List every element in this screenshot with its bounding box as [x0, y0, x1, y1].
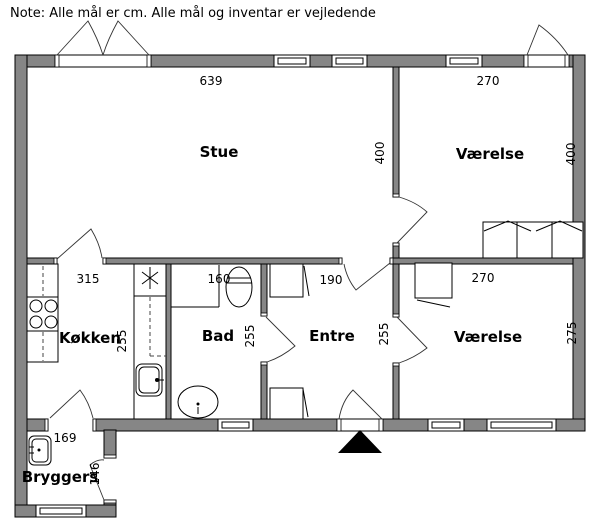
kitchen-sink-icon	[136, 364, 164, 396]
wardrobe-icon	[270, 264, 303, 297]
door-swing-icon	[57, 229, 102, 259]
dim-bad-width: 160	[208, 272, 231, 286]
dim-koekken-depth: 255	[115, 330, 129, 353]
dim-bryggers-width: 169	[54, 431, 77, 445]
room-label-vaerelse-bottom: Værelse	[454, 328, 522, 346]
wardrobe-icon	[415, 263, 452, 298]
door-swing-icon	[50, 390, 93, 418]
room-label-vaerelse-top: Værelse	[456, 145, 524, 163]
floor-plan-drawing	[0, 0, 600, 528]
door-swing-icon	[527, 25, 568, 55]
door-swing-icon	[57, 21, 103, 55]
door-swing-icon	[103, 21, 149, 55]
dim-entre-depth: 255	[377, 323, 391, 346]
bryggers-fixtures	[29, 436, 51, 465]
dim-koekken-width: 315	[77, 272, 100, 286]
dim-stue-width: 639	[200, 74, 223, 88]
dim-vaerelse-bottom-width: 270	[472, 271, 495, 285]
floor-plan: Note: Alle mål er cm. Alle mål og invent…	[0, 0, 600, 528]
door-swing-icon	[344, 263, 390, 290]
dim-bryggers-depth: 146	[88, 463, 102, 486]
interior-doors	[45, 194, 427, 431]
dim-stue-depth: 400	[373, 142, 387, 165]
dim-bad-depth: 255	[243, 325, 257, 348]
room-label-bryggers: Bryggers	[22, 468, 99, 486]
door-swing-icon	[266, 317, 295, 362]
dim-entre-width: 190	[320, 273, 343, 287]
dim-vaerelse-top-width: 270	[477, 74, 500, 88]
washbasin-icon	[178, 386, 218, 418]
door-swing-icon	[397, 197, 427, 243]
room-label-stue: Stue	[200, 143, 239, 161]
door-swing-icon	[397, 317, 427, 363]
entrance-arrow-icon	[338, 430, 382, 453]
room-label-entre: Entre	[309, 327, 355, 345]
wardrobe-icon	[270, 388, 303, 419]
entre-wardrobes	[270, 264, 309, 419]
room-label-bad: Bad	[202, 327, 234, 345]
door-swing-icon	[339, 390, 382, 419]
dim-vaerelse-top-depth: 400	[564, 143, 578, 166]
room-label-koekken: Køkken	[59, 329, 121, 347]
dim-vaerelse-bottom-depth: 275	[565, 322, 579, 345]
bed-icon	[483, 221, 583, 258]
utility-sink-icon	[29, 436, 51, 465]
